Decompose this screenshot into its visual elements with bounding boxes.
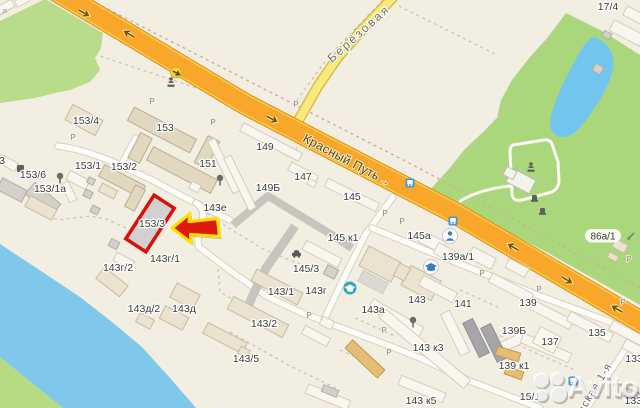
svg-text:Р: Р [386, 348, 391, 357]
svg-text:Р: Р [626, 255, 631, 264]
svg-text:86а/1: 86а/1 [590, 232, 615, 243]
svg-text:17/4: 17/4 [598, 1, 619, 13]
svg-text:Р: Р [381, 326, 386, 335]
svg-text:153/6: 153/6 [20, 169, 46, 181]
svg-text:153/2: 153/2 [111, 161, 137, 173]
svg-text:Р: Р [70, 133, 75, 142]
svg-text:141: 141 [454, 298, 472, 310]
svg-text:143г: 143г [305, 285, 327, 297]
svg-text:139а/1: 139а/1 [442, 251, 474, 263]
svg-text:139 к1: 139 к1 [499, 360, 530, 372]
svg-text:143а: 143а [361, 304, 385, 316]
svg-text:145/3: 145/3 [293, 263, 319, 275]
svg-text:Р: Р [306, 311, 311, 320]
svg-text:143г/2: 143г/2 [103, 262, 133, 274]
svg-text:145 к1: 145 к1 [328, 232, 359, 244]
svg-text:143/1: 143/1 [268, 286, 294, 298]
svg-text:143/5: 143/5 [233, 353, 259, 365]
svg-text:143 к5: 143 к5 [406, 395, 437, 407]
svg-text:139Б: 139Б [502, 325, 527, 337]
svg-text:145а: 145а [407, 230, 431, 242]
svg-text:143: 143 [408, 294, 426, 306]
svg-text:Р: Р [536, 285, 541, 294]
svg-text:151: 151 [199, 158, 217, 170]
svg-text:149: 149 [256, 141, 274, 153]
svg-text:153/1: 153/1 [75, 160, 101, 172]
svg-text:Р: Р [479, 269, 484, 278]
svg-text:Р: Р [399, 217, 404, 226]
svg-text:147: 147 [294, 171, 312, 183]
svg-text:137: 137 [541, 336, 559, 348]
svg-text:143/2: 143/2 [251, 318, 277, 330]
svg-text:Avito: Avito [567, 370, 639, 403]
svg-text:153/4: 153/4 [73, 115, 99, 127]
svg-text:143е: 143е [203, 202, 227, 214]
svg-text:153/1а: 153/1а [34, 183, 66, 195]
svg-text:п: п [3, 8, 7, 15]
svg-text:Р: Р [210, 118, 215, 127]
svg-text:143д: 143д [172, 303, 196, 315]
svg-text:135: 135 [588, 327, 606, 339]
svg-text:3: 3 [0, 155, 5, 167]
svg-text:143г/1: 143г/1 [150, 253, 180, 265]
svg-text:Р: Р [293, 100, 298, 109]
svg-text:143 к3: 143 к3 [413, 342, 444, 354]
svg-text:139: 139 [519, 297, 537, 309]
svg-text:143д/2: 143д/2 [128, 303, 161, 315]
svg-text:153/3: 153/3 [139, 218, 165, 230]
svg-text:Р: Р [382, 209, 387, 218]
svg-text:Р: Р [149, 97, 154, 106]
svg-text:145: 145 [343, 191, 361, 203]
svg-text:153: 153 [156, 122, 174, 134]
svg-text:133: 133 [625, 353, 640, 365]
svg-text:Р: Р [620, 298, 625, 307]
svg-text:149Б: 149Б [256, 182, 281, 194]
